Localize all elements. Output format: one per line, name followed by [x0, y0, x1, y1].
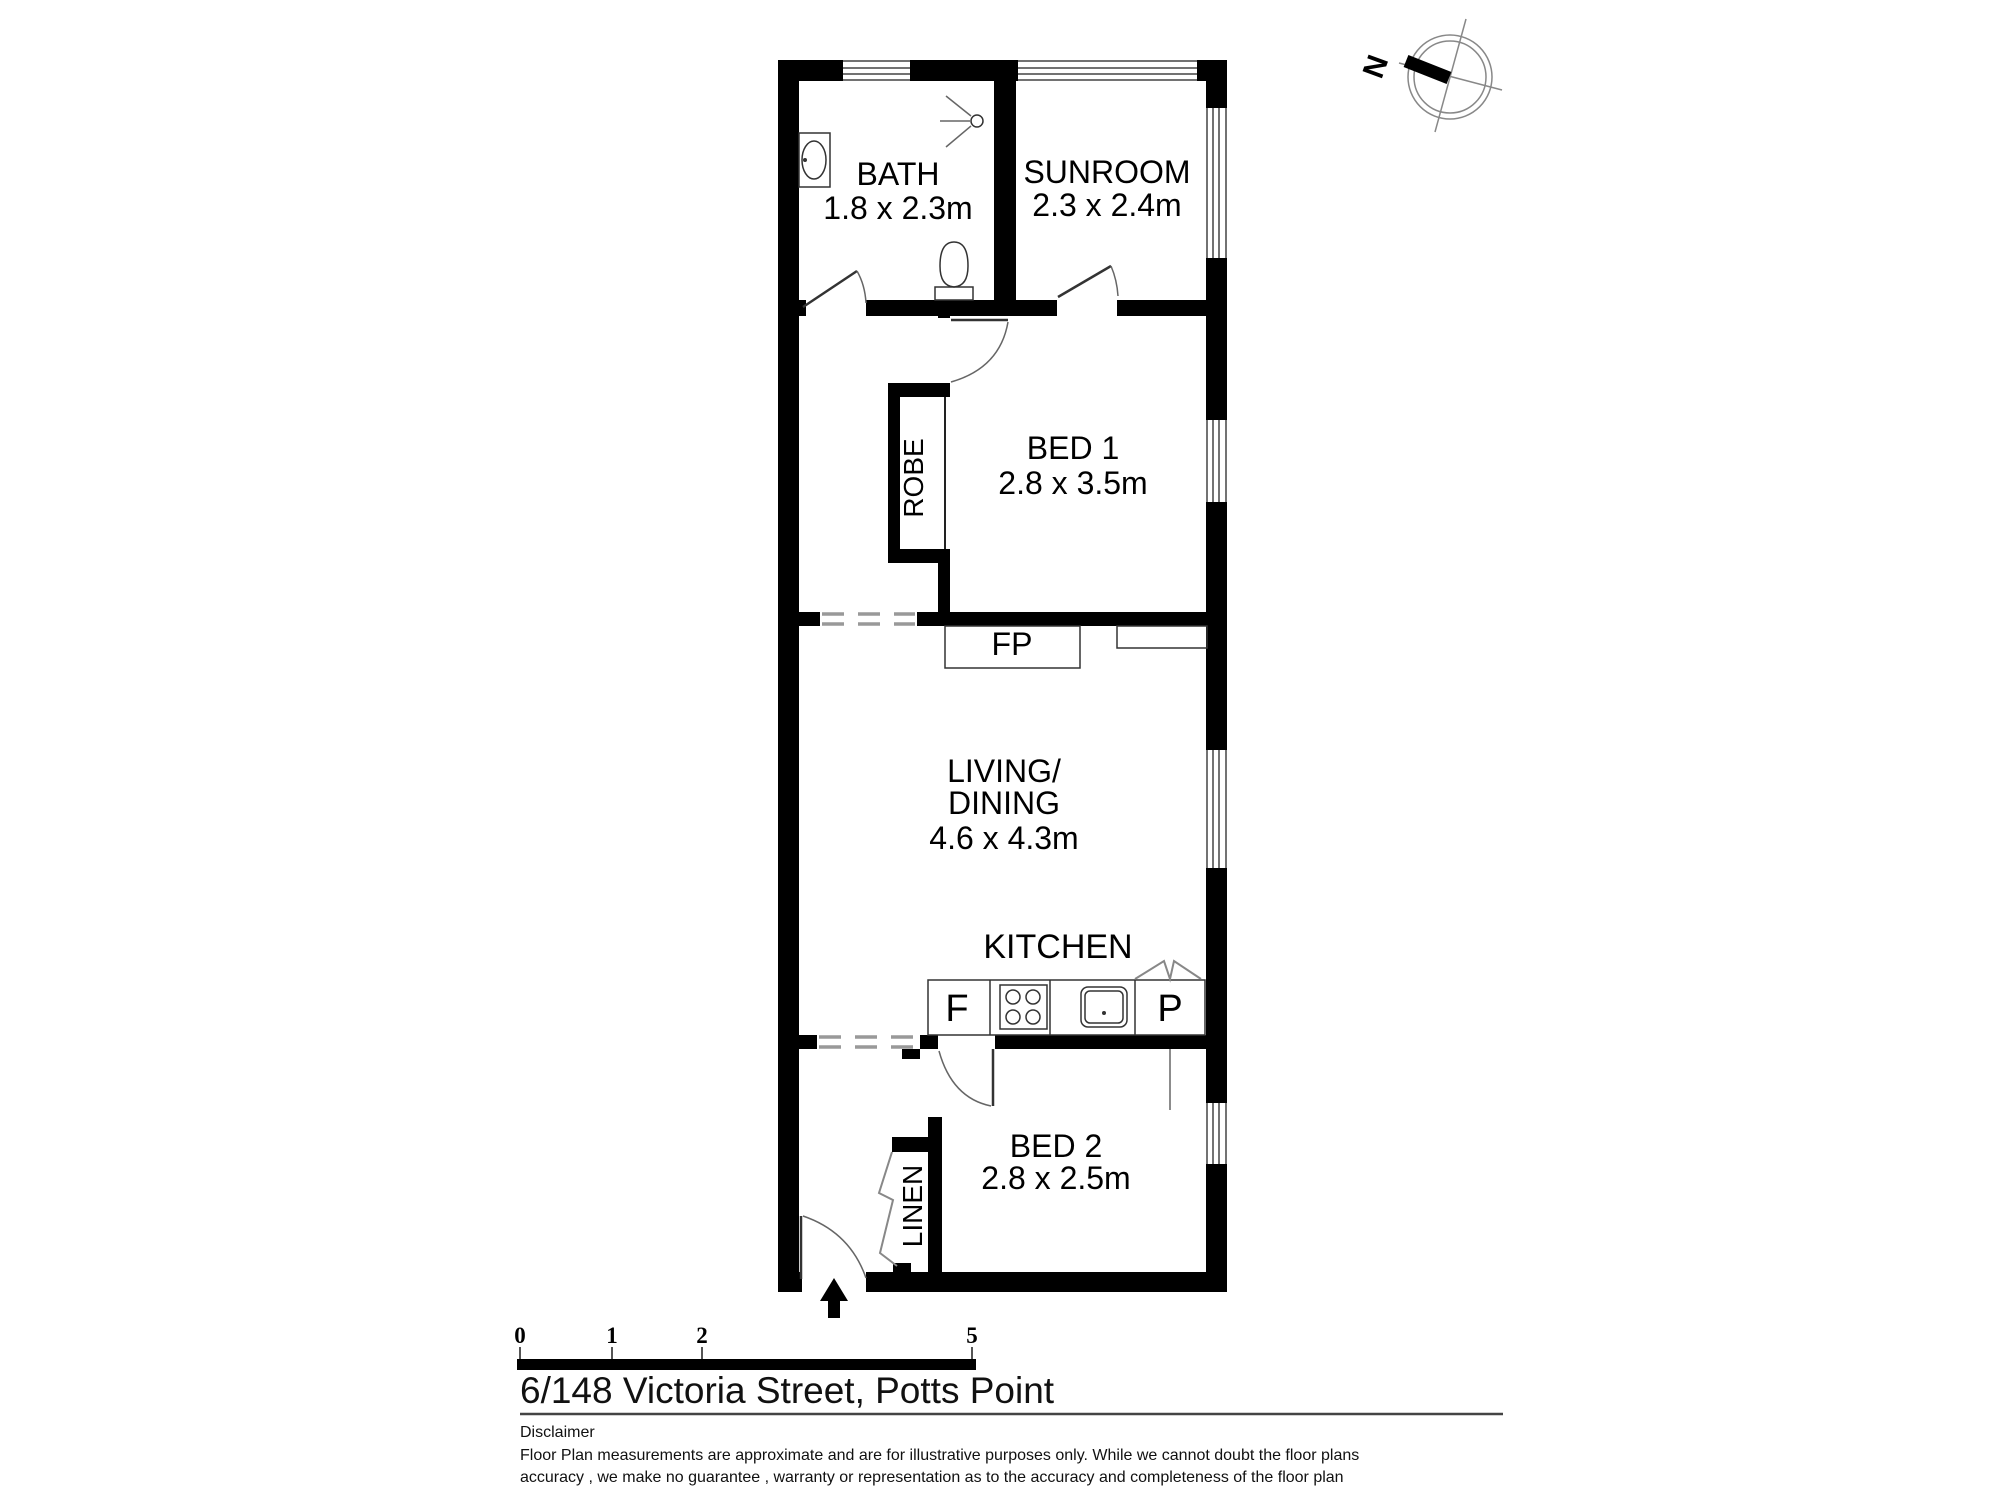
- stove-icon: [1000, 985, 1047, 1029]
- bed2-door: [939, 1049, 993, 1106]
- entry-arrow-icon: [820, 1278, 848, 1318]
- fridge-label: F: [945, 988, 968, 1030]
- disclaimer: Disclaimer Floor Plan measurements are a…: [520, 1424, 1359, 1486]
- bath-window: [843, 60, 910, 81]
- page-title: 6/148 Victoria Street, Potts Point: [520, 1370, 1055, 1411]
- bed2-dims: 2.8 x 2.5m: [981, 1160, 1130, 1196]
- disclaimer-line2: accuracy , we make no guarantee , warran…: [520, 1469, 1344, 1486]
- linen-label: LINEN: [897, 1165, 928, 1247]
- living-window: [1206, 750, 1227, 868]
- toilet-icon: [935, 242, 973, 300]
- wall-entry-north-left: [798, 1035, 817, 1049]
- bed1-door: [951, 320, 1008, 382]
- bed2-label: BED 2: [1010, 1128, 1102, 1164]
- wall-bottom-left-stub: [778, 1272, 802, 1292]
- wall-bed1-left-stub: [938, 300, 950, 318]
- linen-wall-top: [892, 1137, 928, 1152]
- bed1-label: BED 1: [1027, 430, 1119, 466]
- sunroom-door: [1058, 266, 1118, 297]
- basin-icon: [799, 133, 830, 187]
- scale-tick-5: 5: [966, 1323, 978, 1348]
- north-label: N: [1357, 51, 1395, 83]
- living-window-glass: [1206, 750, 1227, 868]
- wall-bed2-left: [928, 1117, 942, 1275]
- sunroom-side-window: [1206, 108, 1227, 258]
- sunroom-label: SUNROOM: [1023, 154, 1190, 190]
- kitchen-label: KITCHEN: [983, 928, 1132, 966]
- sunroom-side-window-glass: [1206, 108, 1227, 258]
- sink-icon: [1081, 987, 1127, 1027]
- internal-walls: [798, 80, 1207, 1275]
- linen-bifold-door: [879, 1152, 897, 1266]
- pantry-label: P: [1157, 988, 1182, 1030]
- living-label-line2: DINING: [948, 785, 1060, 821]
- sunroom-top-window: [1018, 60, 1197, 81]
- floor-plan-page: BATH 1.8 x 2.3m SUNROOM 2.3 x 2.4m BED 1…: [0, 0, 2000, 1500]
- wall-living-north-left: [798, 612, 820, 626]
- bath-window-glass: [843, 60, 910, 81]
- bed2-window: [1206, 1103, 1227, 1164]
- compass: N: [1357, 19, 1502, 132]
- scale-tick-2: 2: [696, 1323, 708, 1348]
- bed2-window-glass: [1206, 1103, 1227, 1164]
- wall-bed2-north-capstub: [902, 1049, 920, 1059]
- bath-label: BATH: [857, 156, 940, 192]
- bath-door: [803, 271, 866, 307]
- living-label-line1: LIVING/: [947, 753, 1061, 789]
- kitchen-bench: [928, 961, 1205, 1110]
- wall-sunroom-south: [1117, 300, 1207, 316]
- wall-living-north: [917, 612, 1207, 626]
- living-dims: 4.6 x 4.3m: [929, 820, 1078, 856]
- wall-bottom: [866, 1272, 1227, 1292]
- bed1-window-glass: [1206, 420, 1227, 502]
- robe-label: ROBE: [898, 438, 929, 517]
- bath-dims: 1.8 x 2.3m: [823, 190, 972, 226]
- shower-icon: [940, 96, 983, 147]
- sunroom-dims: 2.3 x 2.4m: [1032, 187, 1181, 223]
- scale-bar: 0 1 2 5: [514, 1323, 978, 1370]
- wall-left: [778, 60, 799, 1292]
- fireplace-label: FP: [992, 626, 1033, 662]
- wall-bath-south-stub: [798, 300, 806, 316]
- wall-bed2-north: [995, 1035, 1207, 1049]
- floor-plan-drawing: BATH 1.8 x 2.3m SUNROOM 2.3 x 2.4m BED 1…: [0, 0, 2000, 1500]
- hearth-cabinet-box: [1117, 626, 1207, 648]
- scale-tick-0: 0: [514, 1323, 526, 1348]
- scale-tick-1: 1: [606, 1323, 618, 1348]
- entry-door: [801, 1216, 866, 1279]
- wall-bath-south: [866, 300, 1057, 316]
- wall-bed2-north-left: [920, 1035, 938, 1049]
- pantry-bifold-door: [1135, 961, 1201, 979]
- bed1-window: [1206, 420, 1227, 502]
- north-needle-icon: [1406, 61, 1449, 78]
- sunroom-top-window-glass: [1018, 60, 1197, 81]
- robe-wall-bottom: [888, 549, 950, 563]
- room-labels: BATH 1.8 x 2.3m SUNROOM 2.3 x 2.4m BED 1…: [823, 154, 1190, 1247]
- disclaimer-line1: Floor Plan measurements are approximate …: [520, 1447, 1359, 1464]
- disclaimer-heading: Disclaimer: [520, 1424, 595, 1441]
- wall-bath-sunroom: [994, 80, 1016, 316]
- scale-bar-rule: [517, 1359, 976, 1370]
- bed1-dims: 2.8 x 3.5m: [998, 465, 1147, 501]
